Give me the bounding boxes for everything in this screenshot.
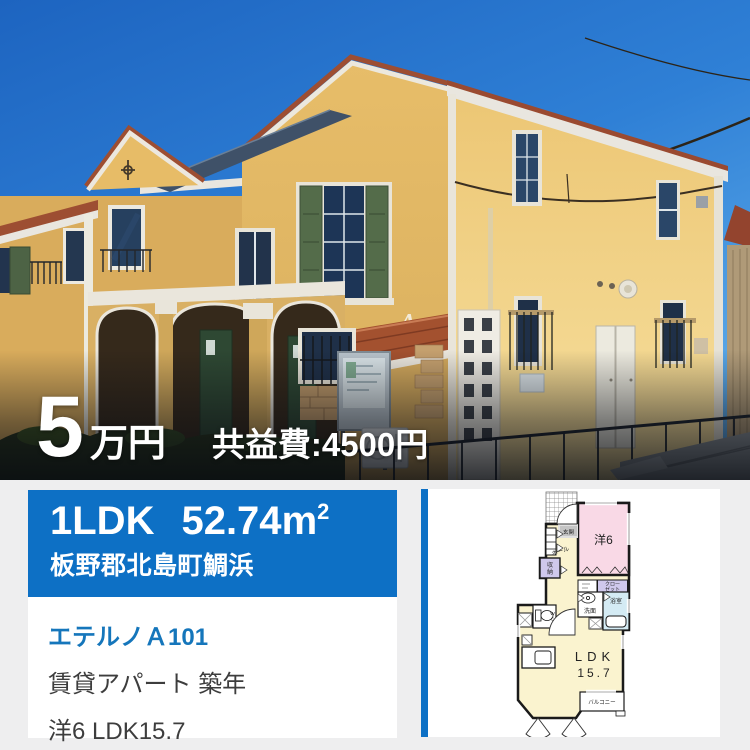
- floorplan-image: 玄関 ホール 収 納 洋6 クロー ゼット 洗面 浴室 W C LDK 15.7…: [428, 489, 720, 737]
- property-type: 賃貸アパート 築年: [48, 664, 379, 699]
- closet-label-2: ゼット: [605, 586, 620, 593]
- bathtub: [606, 616, 626, 627]
- wc-label-2: C: [551, 617, 555, 623]
- property-name-link[interactable]: エテルノＡ101: [48, 617, 379, 652]
- area-exponent: 2: [317, 499, 329, 524]
- upper-window-2: [656, 180, 680, 240]
- listing-summary-card[interactable]: 1LDK52.74m2 板野郡北島町鯛浜 エテルノＡ101 賃貸アパート 築年 …: [28, 490, 397, 738]
- storage-label-2: 納: [547, 568, 553, 576]
- listing-info-section: 1LDK52.74m2 板野郡北島町鯛浜 エテルノＡ101 賃貸アパート 築年 …: [0, 480, 750, 750]
- address: 板野郡北島町鯛浜: [50, 546, 397, 582]
- layout-and-area: 1LDK52.74m2: [50, 501, 397, 542]
- area-value: 52.74: [181, 499, 281, 543]
- balcony-label: バルコニー: [588, 699, 615, 706]
- bay-window-fans: [526, 718, 586, 737]
- upper-window-1: [512, 130, 542, 206]
- left-window-1: [0, 247, 30, 294]
- pillar-cap-2: [243, 303, 273, 319]
- western-room-label: 洋6: [594, 532, 613, 547]
- rooms-summary: 洋6 LDK15.7: [48, 711, 379, 746]
- storage-label-1: 収: [547, 562, 553, 569]
- price-overlay: 5万円共益費:4500円: [36, 389, 428, 467]
- floorplan-card[interactable]: 玄関 ホール 収 納 洋6 クロー ゼット 洗面 浴室 W C LDK 15.7…: [421, 489, 720, 737]
- small-cabinet: [578, 580, 597, 592]
- entrance-label: 玄関: [563, 528, 575, 536]
- ldk-label: LDK: [575, 649, 615, 664]
- maintenance-fee: 共益費:4500円: [212, 426, 428, 463]
- layout-type: 1LDK: [50, 499, 154, 543]
- area-unit: m: [282, 499, 318, 543]
- junction-box: [696, 196, 708, 208]
- ldk-size-label: 15.7: [577, 666, 612, 680]
- listing-card: A: [0, 0, 750, 750]
- price-unit: 万円: [90, 423, 166, 465]
- washroom-label: 洗面: [584, 607, 596, 615]
- pillar-cap-1: [155, 300, 177, 314]
- layout-banner: 1LDK52.74m2 板野郡北島町鯛浜: [28, 490, 397, 597]
- wc-label-1: W: [550, 611, 555, 617]
- bath-label: 浴室: [610, 597, 622, 605]
- price-amount: 5: [36, 379, 82, 475]
- property-photo[interactable]: A: [0, 0, 750, 480]
- property-details: エテルノＡ101 賃貸アパート 築年 洋6 LDK15.7: [28, 597, 397, 746]
